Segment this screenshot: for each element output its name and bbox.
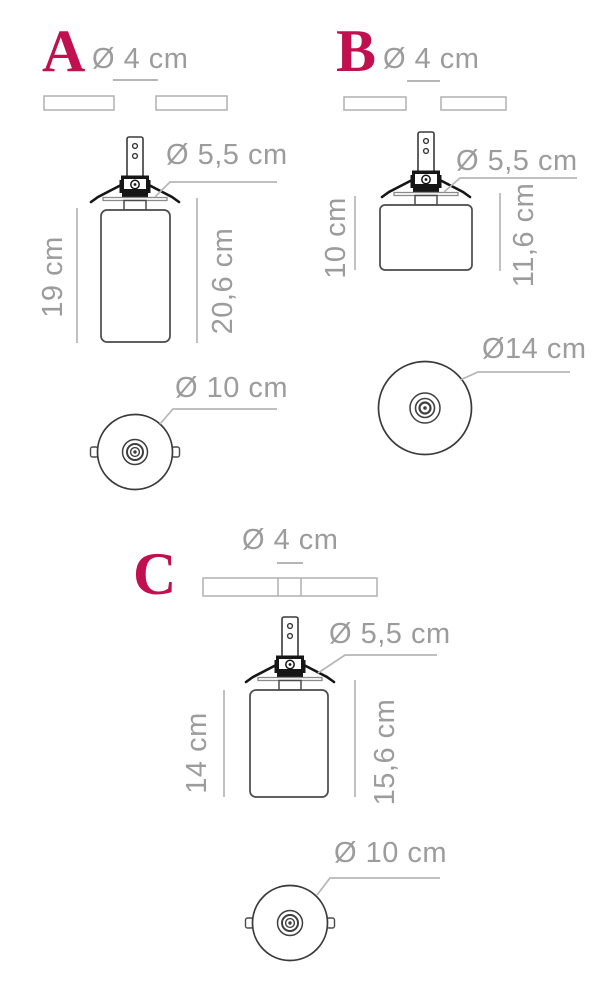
section-b-top-diameter-label: Ø 4 cm: [383, 42, 479, 76]
section-c-height-outer-label: 15,6 cm: [368, 692, 402, 812]
section-a-height-outer-label: 20,6 cm: [206, 221, 240, 341]
section-c-height-inner-label: 14 cm: [180, 693, 214, 813]
dimension-diagram: A Ø 4 cm Ø 5,5 cm 19 cm 20,6 cm Ø 10 cm …: [0, 0, 600, 1001]
section-b-holder-diameter-label: Ø 5,5 cm: [456, 144, 578, 178]
section-b-letter: B: [336, 21, 376, 81]
section-c-top-diameter-label: Ø 4 cm: [242, 523, 338, 557]
section-b-drawing: [344, 81, 577, 455]
section-a-bottom-diameter-label: Ø 10 cm: [175, 371, 288, 405]
section-b-height-inner-label: 10 cm: [319, 178, 353, 298]
section-c-bottom-diameter-label: Ø 10 cm: [334, 836, 447, 870]
section-b-bottom-diameter-label: Ø14 cm: [482, 332, 587, 366]
section-c-holder-diameter-label: Ø 5,5 cm: [329, 617, 451, 651]
section-b-height-outer-label: 11,6 cm: [507, 175, 541, 295]
section-a-height-inner-label: 19 cm: [36, 217, 70, 337]
section-c-letter: C: [133, 544, 176, 604]
section-a-letter: A: [42, 21, 85, 81]
section-a-top-diameter-label: Ø 4 cm: [92, 42, 188, 76]
section-a-holder-diameter-label: Ø 5,5 cm: [166, 138, 288, 172]
